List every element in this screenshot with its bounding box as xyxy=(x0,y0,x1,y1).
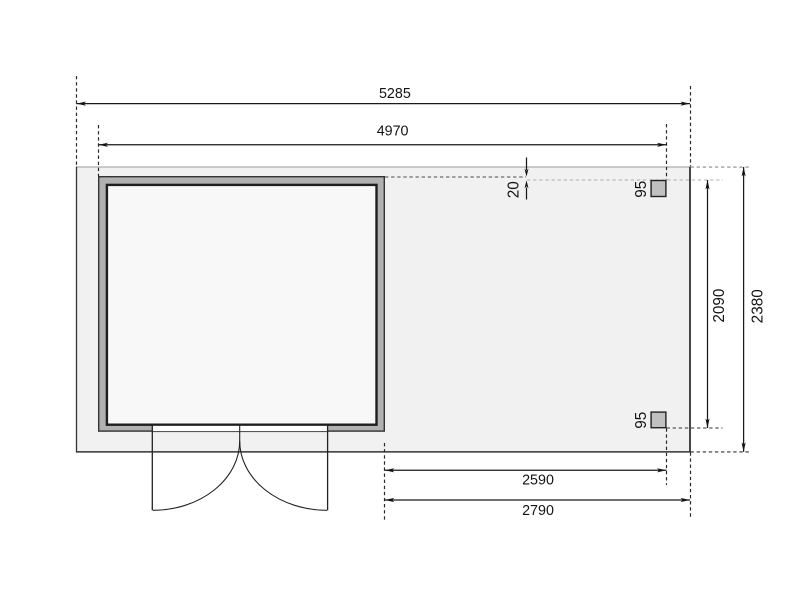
svg-text:95: 95 xyxy=(633,412,650,429)
svg-text:4970: 4970 xyxy=(377,123,409,139)
svg-text:95: 95 xyxy=(633,181,650,198)
svg-text:5285: 5285 xyxy=(379,86,411,102)
svg-text:2090: 2090 xyxy=(711,289,728,323)
svg-text:20: 20 xyxy=(506,181,523,198)
svg-text:2790: 2790 xyxy=(522,503,554,519)
svg-text:2590: 2590 xyxy=(522,473,554,489)
svg-text:2380: 2380 xyxy=(750,289,767,323)
